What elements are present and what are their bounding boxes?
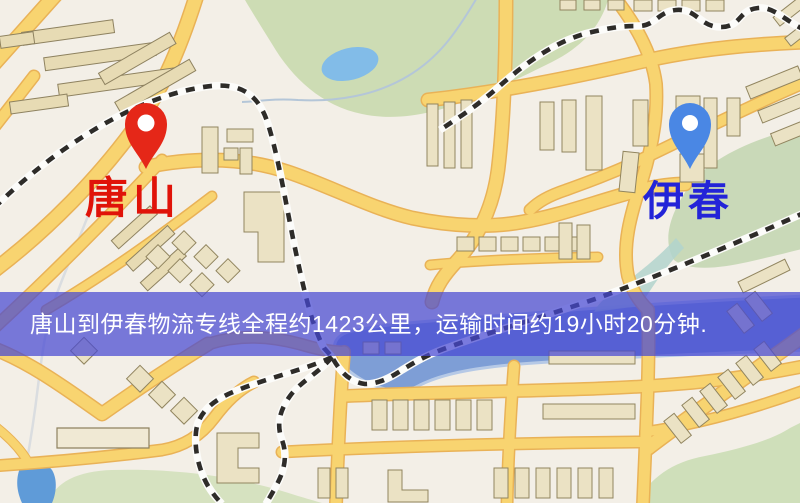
route-info-text: 唐山到伊春物流专线全程约1423公里，运输时间约19小时20分钟. bbox=[30, 311, 707, 337]
map-canvas: 唐山 伊春 唐山到伊春物流专线全程约1423公里，运输时间约19小时20分钟. bbox=[0, 0, 800, 503]
origin-label: 唐山 bbox=[85, 178, 181, 221]
destination-label: 伊春 bbox=[643, 181, 733, 222]
map-art bbox=[0, 0, 800, 503]
route-info-banner: 唐山到伊春物流专线全程约1423公里，运输时间约19小时20分钟. bbox=[0, 292, 800, 356]
